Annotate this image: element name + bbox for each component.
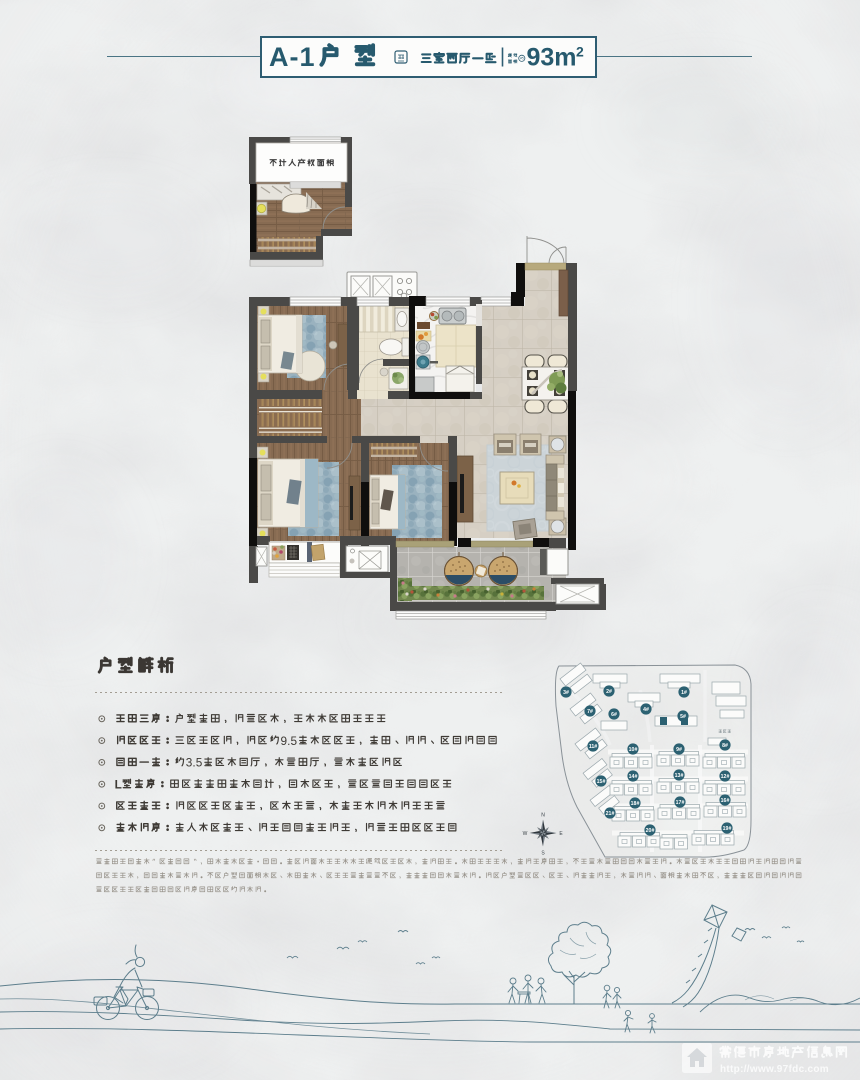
svg-text:5#: 5# bbox=[680, 714, 686, 720]
svg-text:8#: 8# bbox=[722, 743, 728, 749]
svg-text:9#: 9# bbox=[676, 747, 682, 753]
svg-text:E: E bbox=[559, 831, 563, 837]
svg-text:10#: 10# bbox=[629, 747, 638, 753]
svg-text:14#: 14# bbox=[629, 774, 638, 780]
svg-text:18#: 18# bbox=[631, 801, 640, 807]
svg-text:12#: 12# bbox=[721, 774, 730, 780]
svg-text:3#: 3# bbox=[563, 690, 569, 696]
svg-text:16#: 16# bbox=[721, 798, 730, 804]
svg-text:20#: 20# bbox=[646, 828, 655, 834]
svg-text:11#: 11# bbox=[589, 744, 597, 750]
svg-text:19#: 19# bbox=[723, 826, 732, 832]
svg-text:N: N bbox=[541, 813, 545, 819]
svg-text:17#: 17# bbox=[676, 800, 685, 806]
svg-text:A-1: A-1 bbox=[269, 42, 316, 72]
svg-text:13#: 13# bbox=[675, 773, 684, 779]
svg-text:2: 2 bbox=[576, 44, 584, 60]
svg-text:1#: 1# bbox=[681, 690, 687, 696]
svg-text:S: S bbox=[541, 851, 545, 857]
svg-text:21#: 21# bbox=[606, 811, 615, 817]
svg-text:7#: 7# bbox=[587, 709, 593, 715]
svg-text:http://www.97fdc.com: http://www.97fdc.com bbox=[720, 1064, 829, 1075]
svg-text:4#: 4# bbox=[643, 707, 649, 713]
svg-text:15#: 15# bbox=[597, 779, 606, 785]
svg-text:2#: 2# bbox=[606, 689, 612, 695]
svg-text:3.5: 3.5 bbox=[186, 756, 203, 770]
svg-text:W: W bbox=[523, 831, 528, 837]
svg-text:6#: 6# bbox=[611, 712, 617, 718]
svg-text:93m: 93m bbox=[527, 44, 577, 72]
svg-text:9.5: 9.5 bbox=[281, 734, 298, 748]
svg-text:L: L bbox=[115, 777, 122, 791]
